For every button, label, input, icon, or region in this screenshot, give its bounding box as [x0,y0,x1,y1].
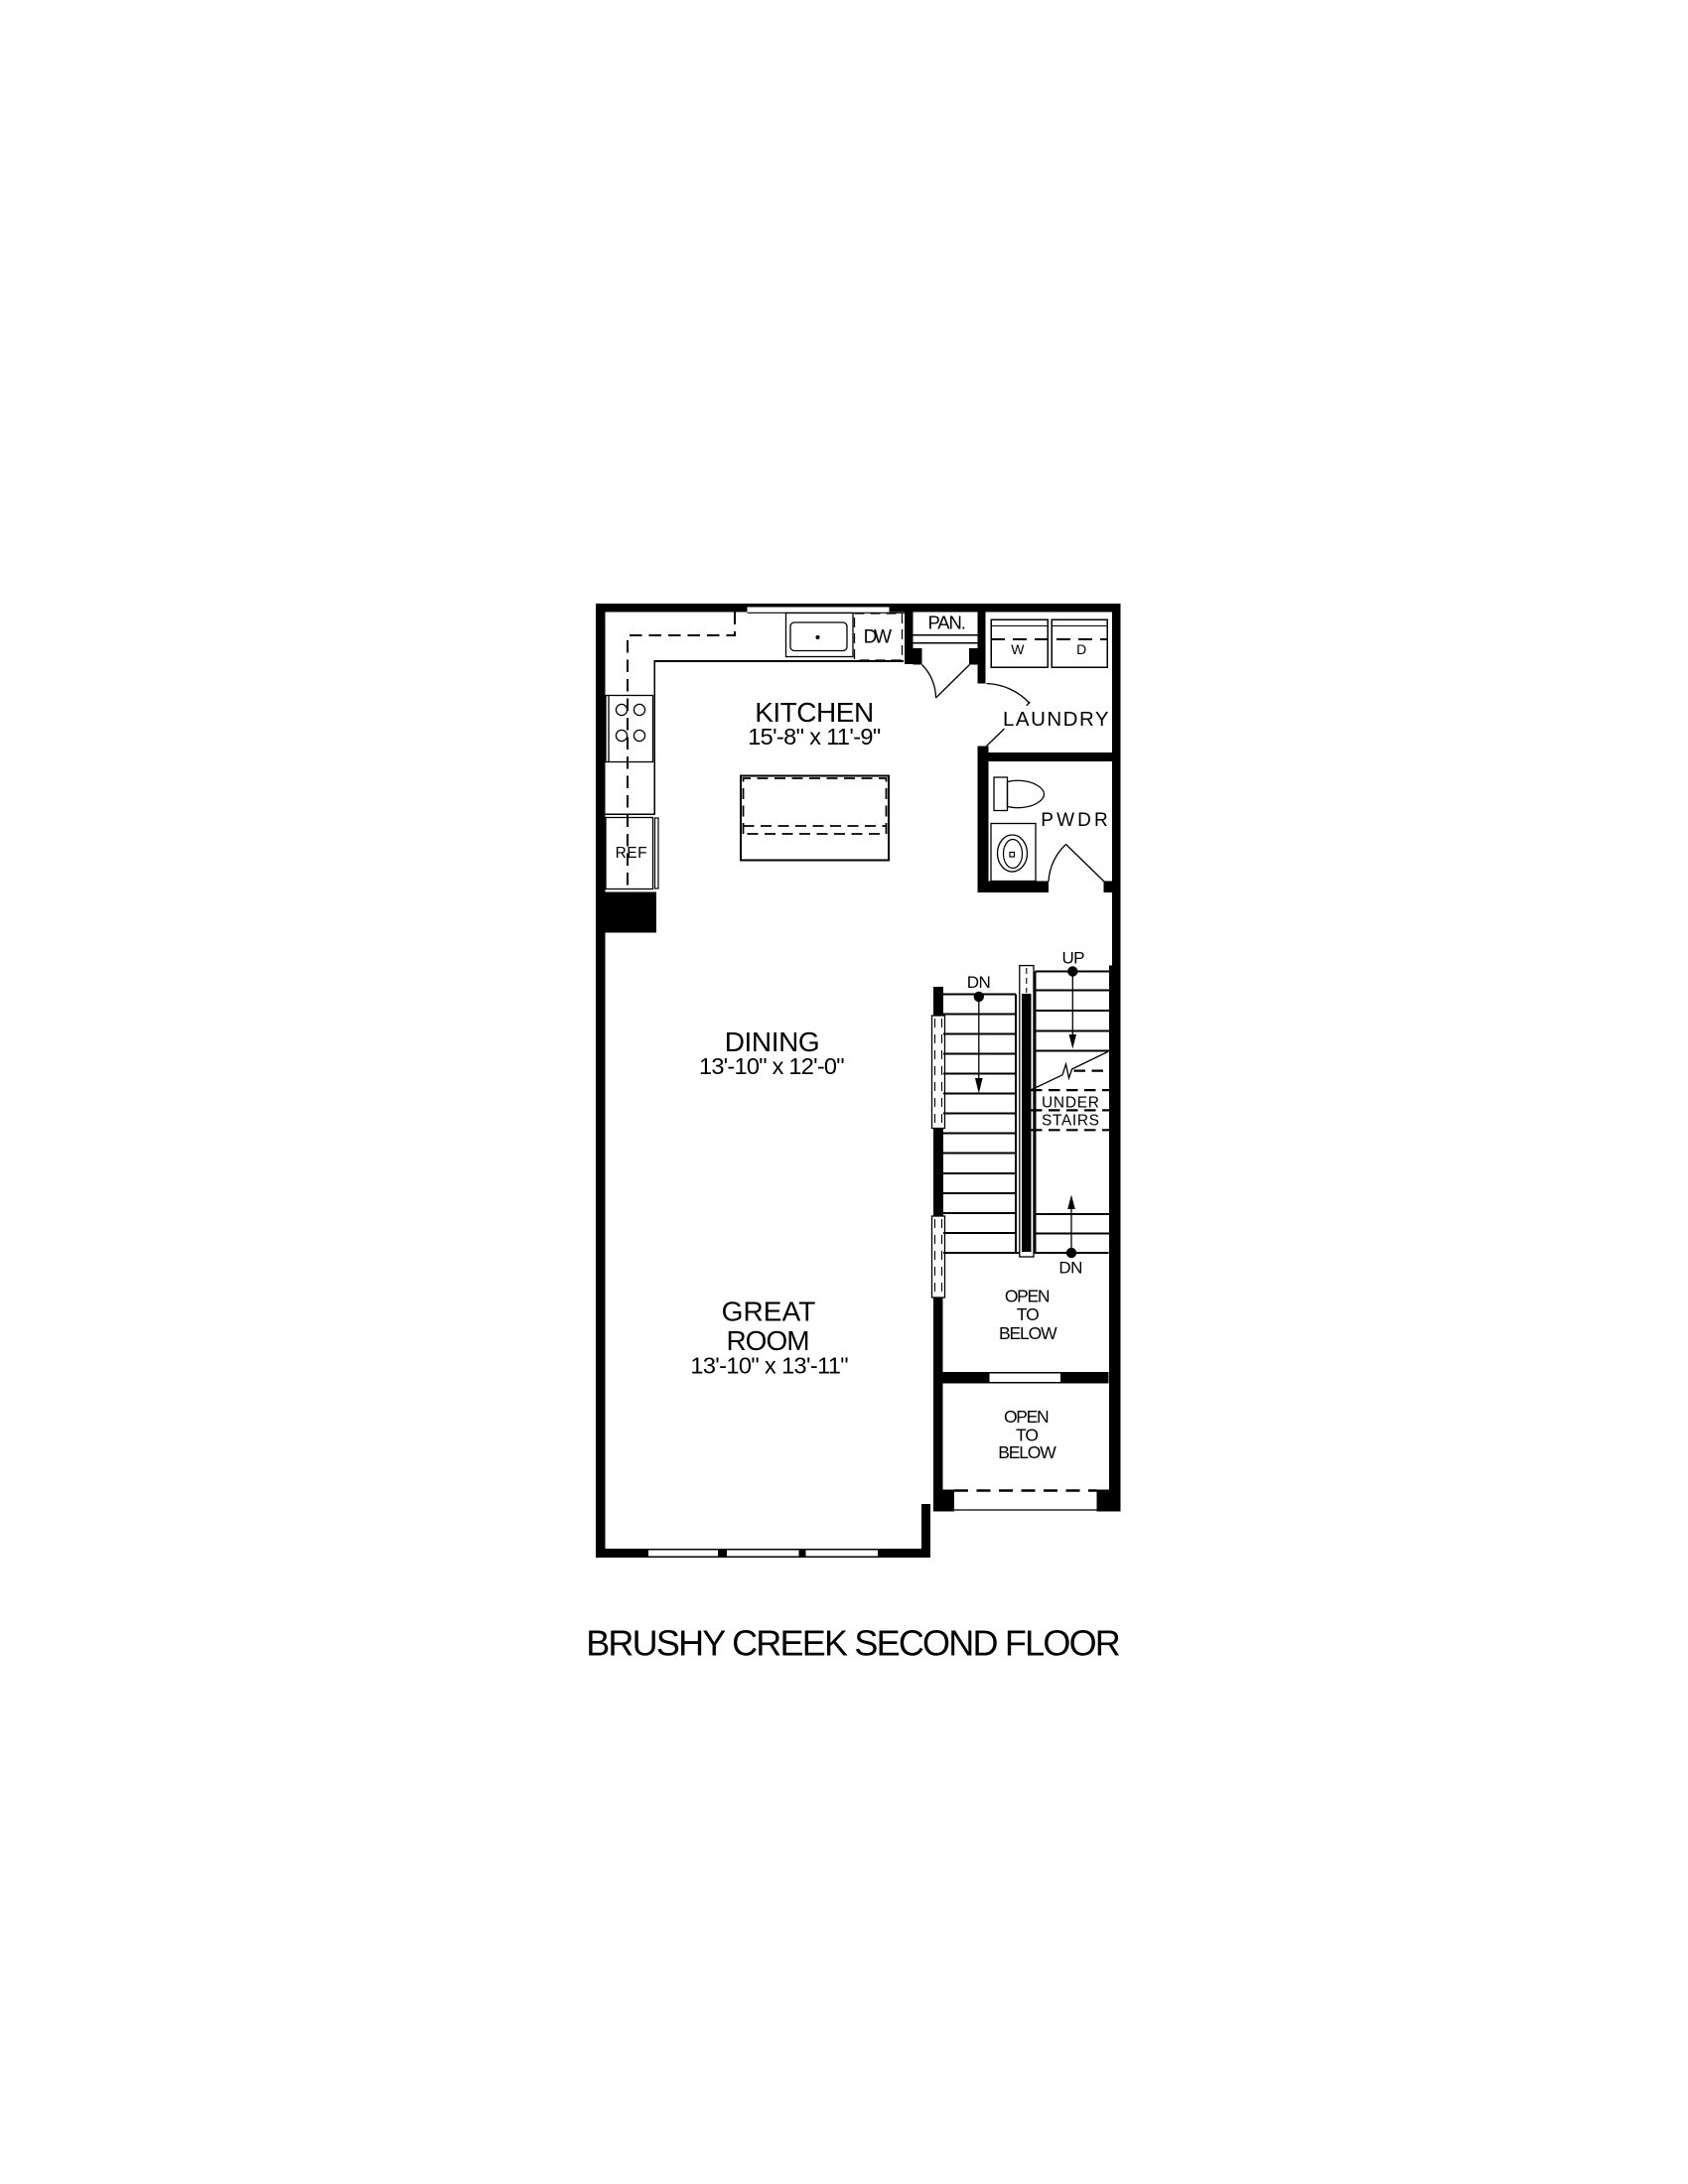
svg-text:BRUSHY CREEK SECOND FLOOR: BRUSHY CREEK SECOND FLOOR [586,1623,1121,1664]
svg-text:UP: UP [1062,949,1085,968]
svg-text:TO: TO [1017,1304,1040,1324]
svg-text:OPEN: OPEN [1005,1286,1051,1305]
svg-text:W: W [1011,641,1025,657]
svg-text:UNDER: UNDER [1042,1095,1099,1112]
svg-text:15'-8" x 11'-9": 15'-8" x 11'-9" [748,724,881,750]
svg-text:D: D [1076,641,1086,657]
svg-text:PAN.: PAN. [927,613,966,633]
svg-text:STAIRS: STAIRS [1042,1112,1099,1129]
svg-text:GREAT: GREAT [722,1297,816,1327]
svg-text:DW: DW [864,627,892,648]
svg-text:13'-10" x 12'-0": 13'-10" x 12'-0" [699,1053,845,1079]
svg-text:PWDR: PWDR [1041,810,1108,831]
svg-text:BELOW: BELOW [998,1442,1056,1462]
svg-text:DN: DN [1058,1258,1082,1277]
svg-text:BELOW: BELOW [999,1323,1057,1343]
svg-text:OPEN: OPEN [1004,1407,1050,1427]
svg-text:DN: DN [967,973,991,992]
svg-text:ROOM: ROOM [726,1325,809,1356]
svg-text:REF: REF [616,845,647,862]
svg-text:LAUNDRY: LAUNDRY [1003,708,1109,731]
svg-text:13'-10" x 13'-11": 13'-10" x 13'-11" [690,1352,848,1378]
